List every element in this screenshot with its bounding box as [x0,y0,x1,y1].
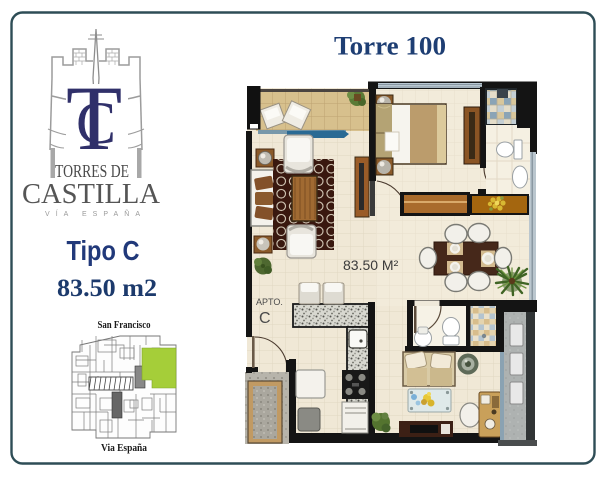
svg-text:San Francisco: San Francisco [98,320,151,331]
svg-text:TORRES DE: TORRES DE [55,161,129,181]
svg-text:Via España: Via España [101,442,147,454]
svg-text:83.50 M²: 83.50 M² [343,257,399,273]
svg-text:CASTILLA: CASTILLA [22,179,160,210]
svg-text:Tipo C: Tipo C [67,235,140,266]
svg-text:C: C [76,90,116,156]
svg-text:Torre 100: Torre 100 [334,32,446,61]
svg-text:VÍA ESPAÑA: VÍA ESPAÑA [45,209,145,218]
svg-text:C: C [259,310,271,327]
svg-text:APTO.: APTO. [256,297,283,307]
svg-text:83.50 m2: 83.50 m2 [57,275,157,302]
